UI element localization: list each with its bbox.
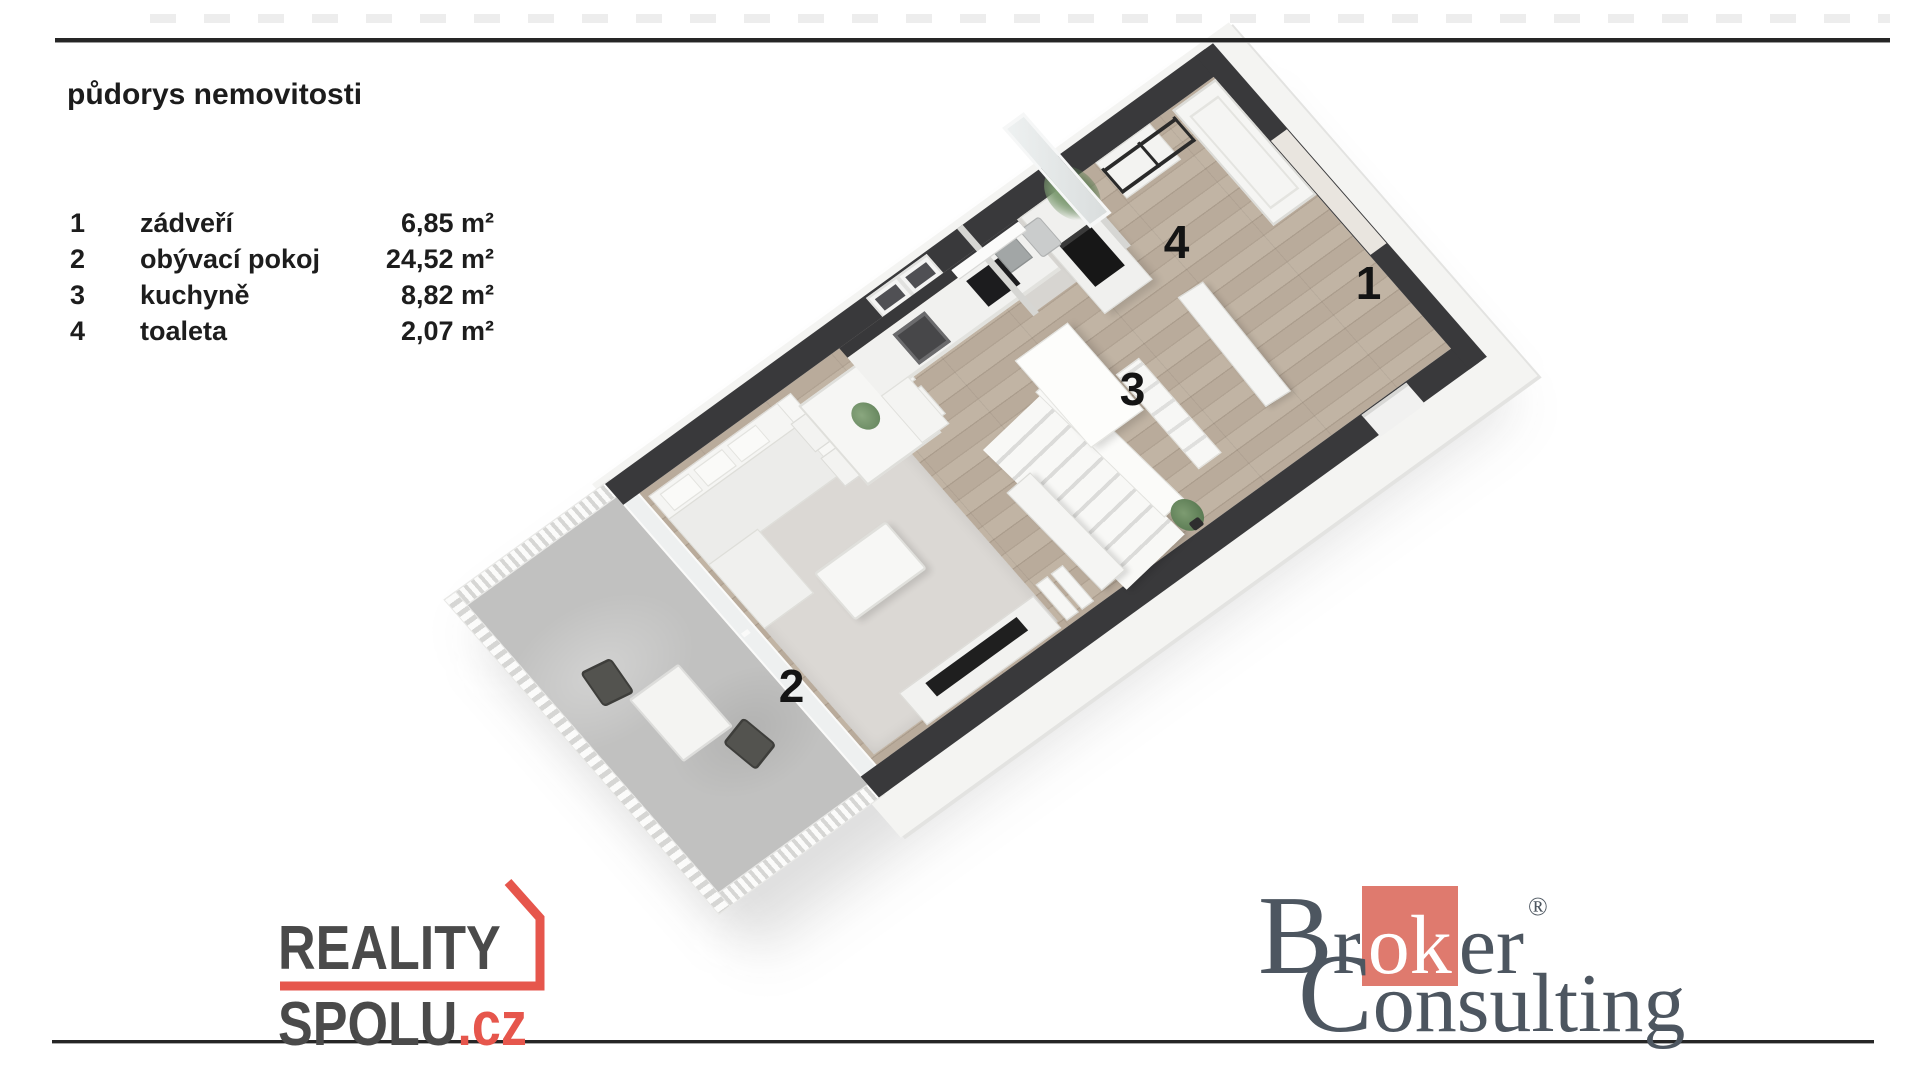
legend-room-name: toaleta (140, 316, 372, 347)
legend-room-number: 2 (70, 244, 140, 275)
legend-room-number: 3 (70, 280, 140, 311)
legend-room-area: 8,82 m² (372, 280, 494, 311)
legend-room-area: 6,85 m² (372, 208, 494, 239)
legend-row: 4 toaleta 2,07 m² (70, 316, 494, 352)
room-label-1: 1 (1356, 256, 1381, 310)
legend-room-area: 24,52 m² (372, 244, 494, 275)
registered-trademark-icon: ® (1528, 892, 1548, 921)
reality-spolu-logo: REALITY SPOLU.cz (278, 918, 574, 1056)
top-dashed-strip (150, 14, 1890, 23)
legend-row: 2 obývací pokoj 24,52 m² (70, 244, 494, 280)
legend-row: 3 kuchyně 8,82 m² (70, 280, 494, 316)
legend-room-area: 2,07 m² (372, 316, 494, 347)
logo-text-consulting: Consulting (1298, 950, 1685, 1046)
consulting-initial-c: C (1298, 932, 1373, 1056)
room-label-3: 3 (1120, 362, 1145, 416)
legend-room-name: obývací pokoj (140, 244, 372, 275)
logo-text-reality: REALITY (278, 918, 527, 980)
broker-consulting-logo: Broker® Consulting (1258, 886, 1685, 1046)
page-title: půdorys nemovitosti (67, 78, 362, 112)
legend-room-number: 1 (70, 208, 140, 239)
room-label-2: 2 (779, 659, 804, 713)
legend-room-name: kuchyně (140, 280, 372, 311)
legend-room-name: zádveří (140, 208, 372, 239)
glass-door-mullion (741, 629, 751, 637)
consulting-rest: onsulting (1373, 957, 1686, 1050)
top-rule (55, 38, 1890, 42)
room-label-4: 4 (1164, 215, 1189, 269)
legend-row: 1 zádveří 6,85 m² (70, 208, 494, 244)
floorplan-page: půdorys nemovitosti 1 zádveří 6,85 m² 2 … (0, 0, 1920, 1080)
room-legend: 1 zádveří 6,85 m² 2 obývací pokoj 24,52 … (70, 208, 494, 352)
logo-text-cz: .cz (457, 990, 526, 1059)
logo-text-spolu: SPOLU.cz (278, 994, 527, 1056)
legend-room-number: 4 (70, 316, 140, 347)
